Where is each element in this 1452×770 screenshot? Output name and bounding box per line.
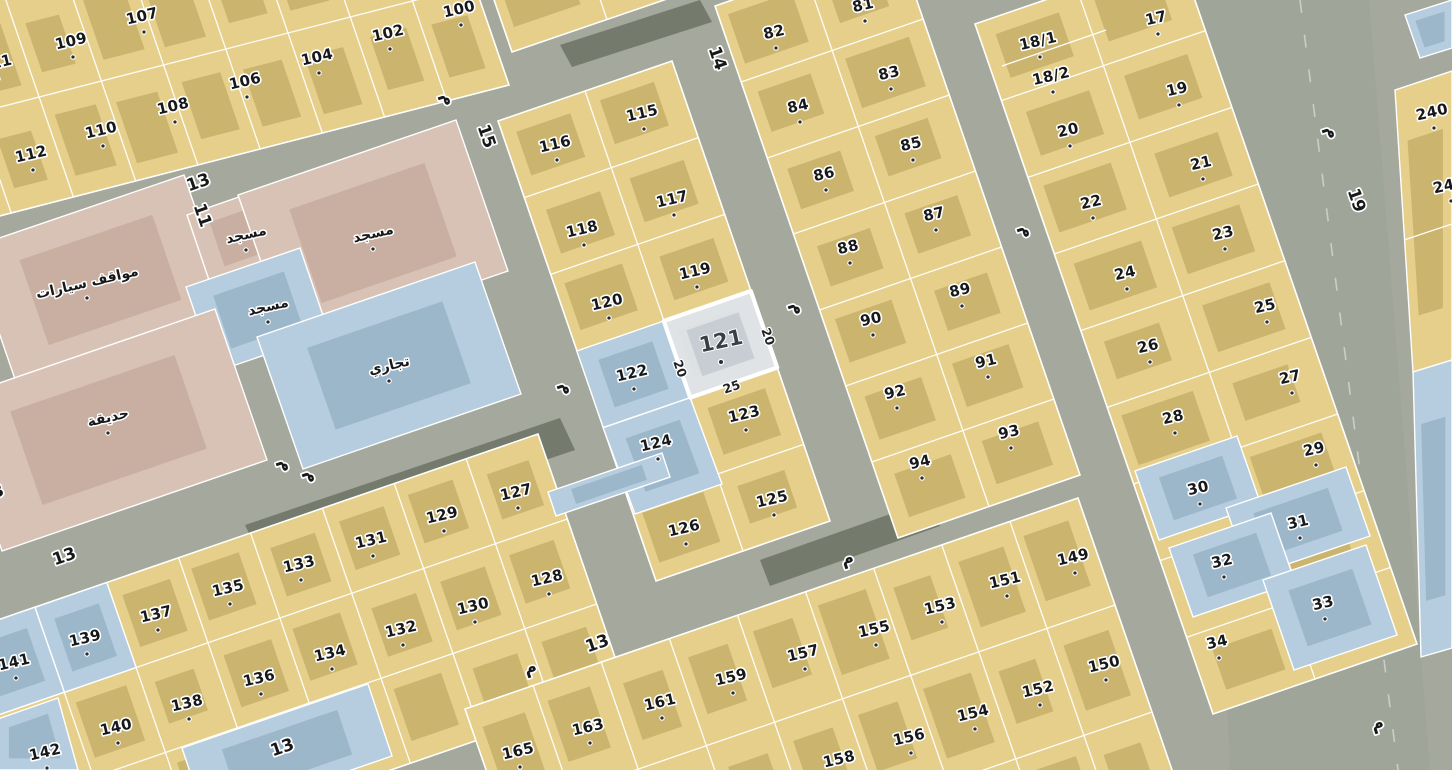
parcel-centroid-dot [582,243,586,247]
parcel-centroid-dot [555,158,559,162]
parcel-centroid-dot [672,213,676,217]
parcel-centroid-dot [660,716,664,720]
parcel-centroid-dot [1432,126,1436,130]
parcel-centroid-dot [1223,247,1227,251]
parcel-centroid-dot [1091,216,1095,220]
parcel-centroid-dot [774,46,778,50]
parcel-centroid-dot [518,765,522,769]
parcel-centroid-dot [1222,575,1226,579]
parcel-centroid-dot [1009,446,1013,450]
parcel-centroid-dot [547,592,551,596]
parcel-centroid-dot [101,144,105,148]
area-centroid-dot [85,296,89,300]
parcel-centroid-dot [848,261,852,265]
parcel-centroid-dot [1148,360,1152,364]
parcel-centroid-dot [1198,502,1202,506]
parcel-centroid-dot [459,23,463,27]
parcel-centroid-dot [156,628,160,632]
parcel-centroid-dot [1038,55,1042,59]
parcel-centroid-dot [1265,320,1269,324]
area-centroid-dot [266,320,270,324]
parcel-centroid-dot [1125,287,1129,291]
parcel-centroid-dot [1051,90,1055,94]
parcel-centroid-dot [895,406,899,410]
parcel-centroid-dot [1068,144,1072,148]
parcel-centroid-dot [1217,656,1221,660]
parcel-centroid-dot [14,676,18,680]
area-centroid-dot [371,247,375,251]
parcel-centroid-dot [1177,103,1181,107]
parcel-centroid-dot [656,457,660,461]
parcel-centroid-dot [718,359,723,364]
parcel-centroid-dot [731,691,735,695]
parcel-centroid-dot [632,387,636,391]
parcel-centroid-dot [1073,571,1077,575]
parcel-centroid-dot [1005,594,1009,598]
parcel-centroid-dot [31,168,35,172]
parcel-centroid-dot [824,188,828,192]
parcel-centroid-dot [228,602,232,606]
parcel-centroid-dot [317,71,321,75]
parcel-centroid-dot [1298,536,1302,540]
parcel-centroid-dot [1038,703,1042,707]
parcel-centroid-dot [245,95,249,99]
parcel-centroid-dot [911,158,915,162]
parcel-centroid-dot [1201,177,1205,181]
parcel-centroid-dot [874,643,878,647]
map-viewport[interactable]: 2020251211001021041061071081091101111121… [0,0,1452,770]
parcel-centroid-dot [85,652,89,656]
parcel-centroid-dot [973,727,977,731]
parcel-centroid-dot [909,751,913,755]
parcel-centroid-dot [889,87,893,91]
parcel-centroid-dot [772,513,776,517]
parcel-centroid-dot [1156,32,1160,36]
parcel-centroid-dot [299,578,303,582]
parcel-centroid-dot [1290,391,1294,395]
parcel-centroid-dot [401,643,405,647]
parcel-centroid-dot [187,717,191,721]
parcel-centroid-dot [1314,463,1318,467]
parcel-centroid-dot [388,47,392,51]
parcel-centroid-dot [1173,431,1177,435]
parcel-centroid-dot [142,30,146,34]
parcel-centroid-dot [986,375,990,379]
parcel-centroid-dot [607,316,611,320]
parcel-centroid-dot [863,19,867,23]
parcel-centroid-dot [798,120,802,124]
parcel-centroid-dot [1323,617,1327,621]
parcel-centroid-dot [960,304,964,308]
parcel-centroid-dot [871,333,875,337]
parcel-centroid-dot [71,55,75,59]
parcel-centroid-dot [920,476,924,480]
parcel-centroid-dot [1104,678,1108,682]
parcel-centroid-dot [45,766,49,770]
parcel-centroid-dot [588,741,592,745]
parcel-centroid-dot [371,554,375,558]
area-centroid-dot [244,248,248,252]
parcel-centroid-dot [642,127,646,131]
parcel-centroid-dot [330,667,334,671]
parcel-centroid-dot [116,741,120,745]
parcel-centroid-dot [934,228,938,232]
area-centroid-dot [387,379,391,383]
area-centroid-dot [106,431,110,435]
parcel-centroid-dot [473,620,477,624]
parcel-centroid-dot [695,285,699,289]
parcel-centroid-dot [259,692,263,696]
parcel-centroid-dot [442,529,446,533]
parcel-centroid-dot [803,667,807,671]
parcel-centroid-dot [744,428,748,432]
map-canvas[interactable]: 2020251211001021041061071081091101111121… [0,0,1452,770]
parcel-centroid-dot [940,620,944,624]
parcel-centroid-dot [516,506,520,510]
parcel-centroid-dot [173,120,177,124]
parcel-centroid-dot [684,542,688,546]
